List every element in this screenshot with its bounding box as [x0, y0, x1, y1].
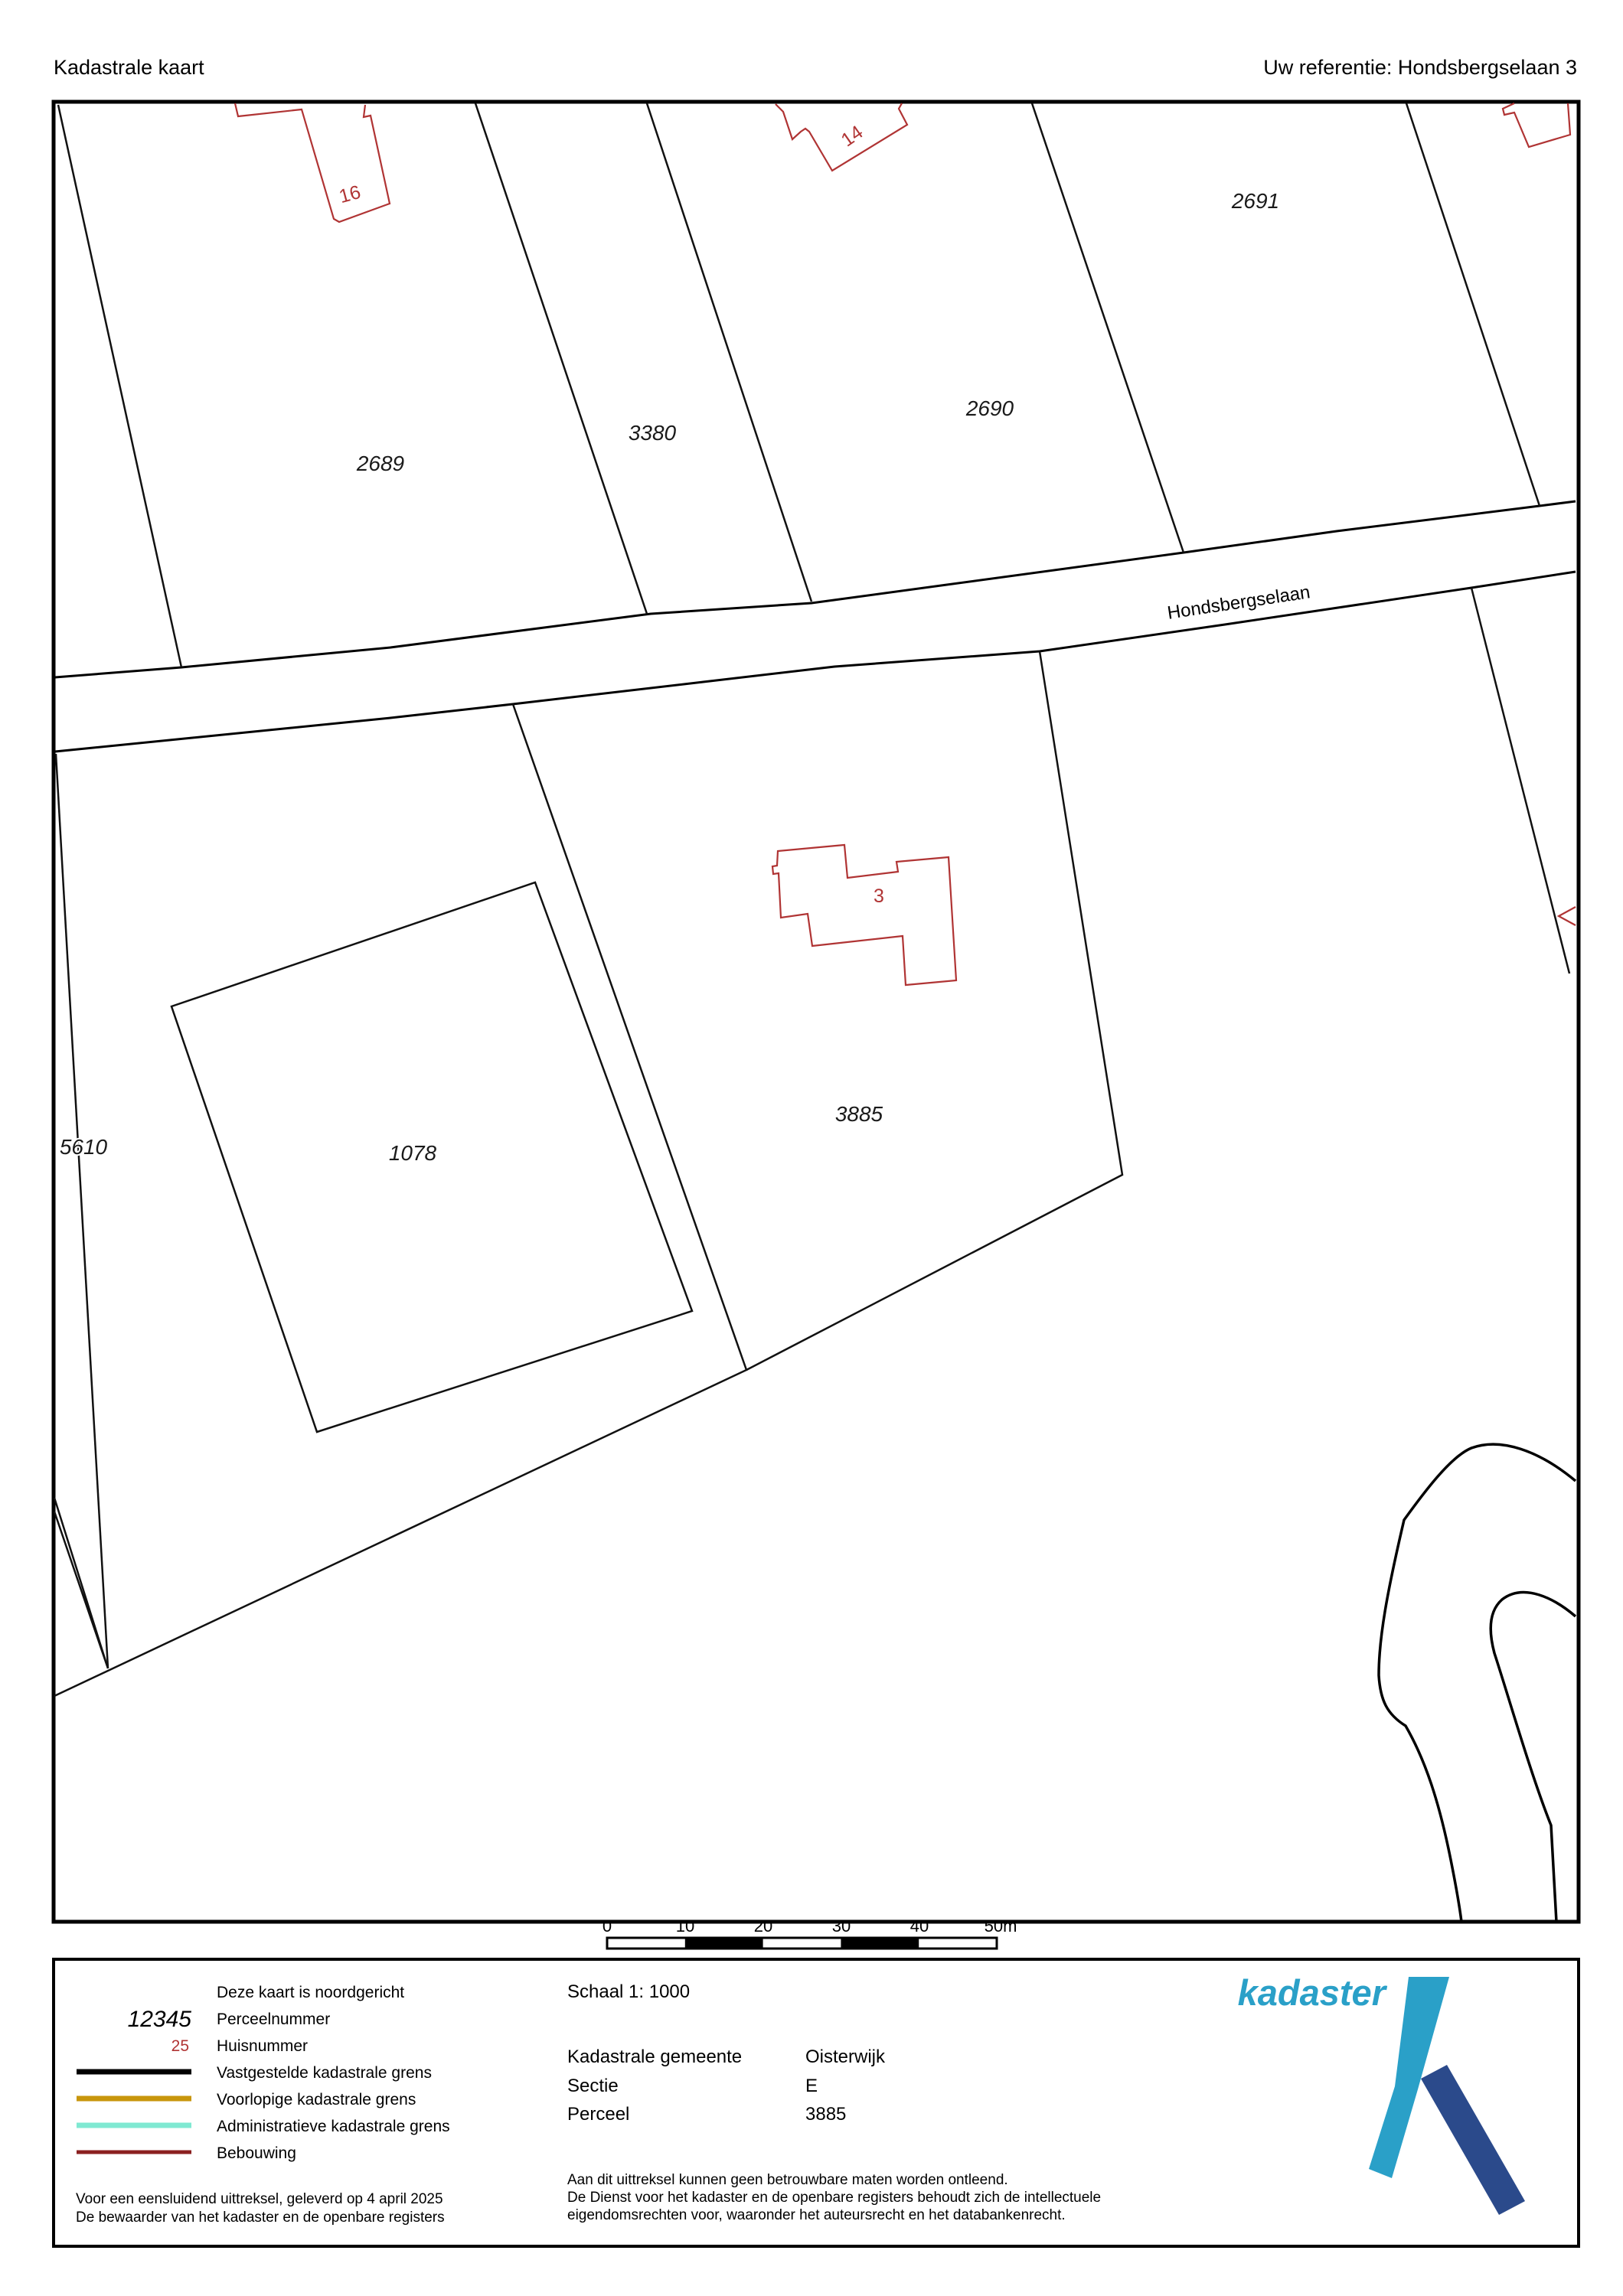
scale-bar-outline — [607, 1938, 997, 1949]
legend-footer-line1: Voor een eensluidend uittreksel, gelever… — [76, 2191, 443, 2207]
scale-tick-40: 40 — [910, 1916, 929, 1936]
parcel-label-2690: 2690 — [965, 396, 1014, 420]
house-number-labels: 16 14 3 — [337, 122, 884, 907]
map-border — [54, 102, 1579, 1922]
building-3-outline — [772, 845, 956, 985]
curved-feature-outer — [1379, 1444, 1576, 1922]
perceel-label: Perceel — [567, 2104, 629, 2125]
kadastrale-kaart-page: Kadastrale kaart Uw referentie: Hondsber… — [0, 0, 1623, 2296]
building-right-fragment — [1559, 907, 1576, 925]
building-topright-fragment — [1503, 103, 1570, 147]
legend: Deze kaart is noordgericht 12345 Perceel… — [54, 1959, 1579, 2246]
boundary-2690-2691 — [1032, 103, 1184, 553]
reference-text: Uw referentie: Hondsbergselaan 3 — [1263, 56, 1577, 79]
legend-housenumber-label: Huisnummer — [217, 2037, 308, 2055]
parcel-label-1078: 1078 — [389, 1141, 437, 1165]
kadaster-logo-blade-dark — [1421, 2065, 1525, 2215]
house-number-16: 16 — [337, 181, 363, 207]
legend-housenumber-sample: 25 — [171, 2037, 189, 2055]
legend-footer-line2: De bewaarder van het kadaster en de open… — [76, 2210, 445, 2226]
kadaster-logo-word: kadaster — [1238, 1972, 1388, 2013]
legend-label-administratief: Administratieve kadastrale grens — [217, 2118, 450, 2135]
legend-parcelnumber-label: Perceelnummer — [217, 2011, 330, 2028]
legend-label-bebouwing: Bebouwing — [217, 2144, 296, 2162]
disclaimer-line3: eigendomsrechten voor, waaronder het aut… — [567, 2207, 1066, 2223]
sectie-label: Sectie — [567, 2076, 619, 2096]
boundary-3380-2690 — [647, 103, 811, 602]
scale-tick-50m: 50m — [985, 1916, 1017, 1936]
page-title: Kadastrale kaart — [54, 56, 204, 79]
buildings — [235, 103, 1576, 985]
building-16-outline — [235, 103, 390, 222]
parcel-label-3885: 3885 — [835, 1102, 883, 1126]
kadaster-logo: kadaster — [1238, 1972, 1525, 2215]
parcel-label-3380: 3380 — [629, 421, 677, 445]
scale-tick-20: 20 — [754, 1916, 772, 1936]
gemeente-value: Oisterwijk — [805, 2047, 886, 2067]
boundary-3885-right — [746, 651, 1122, 1370]
perceel-value: 3885 — [805, 2104, 846, 2125]
boundary-2689-3380 — [475, 103, 647, 614]
parcel-label-2691: 2691 — [1231, 189, 1279, 213]
house-number-3: 3 — [874, 885, 884, 907]
parcel-boundaries — [54, 103, 1576, 1922]
curved-feature-inner — [1491, 1593, 1576, 1922]
scale-text: Schaal 1: 1000 — [567, 1981, 690, 2002]
north-note: Deze kaart is noordgericht — [217, 1984, 404, 2001]
scale-tick-0: 0 — [603, 1916, 612, 1936]
scale-tick-10: 10 — [676, 1916, 694, 1936]
gemeente-label: Kadastrale gemeente — [567, 2047, 742, 2067]
boundary-topleft-sliver — [58, 105, 181, 667]
legend-label-vastgesteld: Vastgestelde kadastrale grens — [217, 2064, 432, 2082]
legend-label-voorlopig: Voorlopige kadastrale grens — [217, 2091, 416, 2108]
house-number-14: 14 — [838, 122, 867, 152]
disclaimer-line2: De Dienst voor het kadaster en de openba… — [567, 2190, 1101, 2206]
parcel-label-5610: 5610 — [60, 1135, 108, 1159]
road-lower-edge — [55, 572, 1576, 752]
scale-segment-black-2 — [841, 1938, 919, 1949]
boundary-5610 — [56, 754, 108, 1668]
boundary-right-lower — [1471, 588, 1569, 974]
road-hondsbergselaan — [55, 501, 1576, 752]
disclaimer-line1: Aan dit uittreksel kunnen geen betrouwba… — [567, 2172, 1008, 2188]
scale-segment-black-1 — [685, 1938, 763, 1949]
map-document: Kadastrale kaart Uw referentie: Hondsber… — [0, 0, 1623, 2296]
boundary-2691-right — [1406, 103, 1540, 506]
sectie-value: E — [805, 2076, 818, 2096]
parcel-label-2689: 2689 — [356, 452, 404, 475]
scale-tick-30: 30 — [832, 1916, 851, 1936]
parcel-labels: 2689 3380 2690 2691 5610 1078 3885 — [60, 189, 1279, 1165]
road-name-label: Hondsbergselaan — [1166, 582, 1311, 624]
road-upper-edge — [55, 501, 1576, 677]
boundary-3885-left — [54, 704, 746, 1696]
legend-parcelnumber-sample: 12345 — [128, 2007, 192, 2032]
